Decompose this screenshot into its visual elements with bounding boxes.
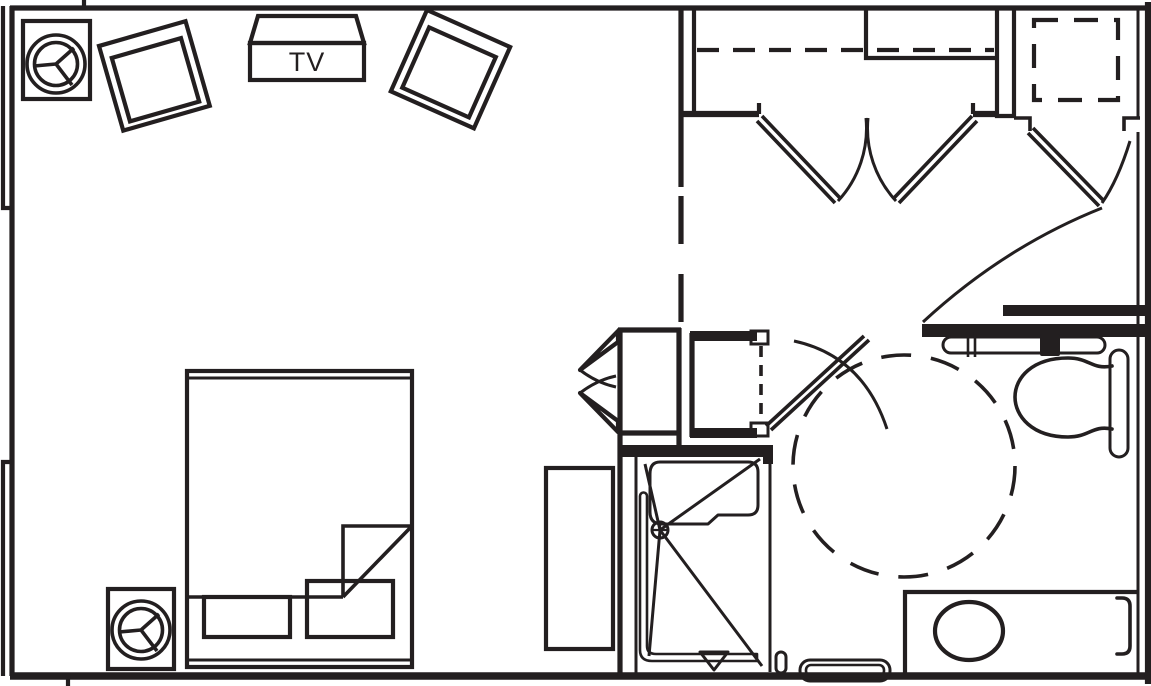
vestibule-bottom-wall (690, 428, 757, 438)
wheelchair-turning-circle (793, 355, 1015, 577)
entry-vestibule (690, 331, 757, 438)
closet-door-swing-left (838, 118, 866, 201)
entry-door-swing-small (1102, 141, 1130, 203)
lamp-table-bottom (108, 589, 174, 669)
bed-outline (187, 371, 412, 667)
bathroom-door (751, 331, 887, 436)
vanity-sink (935, 602, 1003, 660)
vestibule-top-wall (690, 331, 757, 341)
bathroom-door-swing (794, 341, 887, 429)
guest-room: TV (23, 10, 613, 669)
lounge-chair-left (99, 21, 210, 130)
vanity-towel-bar (1117, 598, 1130, 654)
bifold-doors (580, 331, 618, 432)
clear-floor-space-dashed-square (1034, 20, 1118, 100)
lamp-table-top (23, 21, 90, 99)
bathroom-north-wall-upper (1003, 305, 1148, 316)
entry-closet (681, 8, 1014, 203)
lounge-chair-right (391, 10, 510, 128)
closet-right-wall (997, 8, 1014, 116)
toilet-area (943, 332, 1128, 457)
blanket-fold (343, 526, 410, 597)
tv-label: TV (289, 47, 326, 77)
grab-bar-mount (1040, 334, 1060, 356)
bedroom-closet (580, 328, 681, 450)
dresser-bench (546, 468, 613, 649)
tv-cabinet-top (250, 16, 364, 43)
floor-plan-drawing: TV (0, 0, 1151, 686)
chair-seat (112, 38, 199, 121)
tv-cabinet: TV (250, 16, 364, 80)
bifold-door-lower (580, 393, 618, 432)
closet-door-swing-right (868, 118, 896, 201)
pillow-left (204, 597, 290, 637)
entry-door-leaf (1028, 128, 1104, 206)
bathroom-north-wall-lower (922, 324, 1148, 337)
vanity (905, 592, 1138, 674)
alcove-jamb-right (1124, 118, 1140, 131)
entry-door (923, 128, 1130, 322)
bathroom (640, 332, 1138, 681)
toilet-bowl (1015, 358, 1112, 437)
floor-plan-canvas: TV (0, 0, 1151, 686)
entry-alcove (923, 8, 1140, 322)
shower-spray-lines (645, 459, 762, 666)
alcove-jamb-left (1014, 118, 1030, 131)
bifold-door-upper (580, 331, 618, 370)
roll-in-shower (640, 457, 786, 673)
bathroom-door-leaf (766, 336, 869, 430)
closet-double-doors (757, 116, 977, 203)
vanity-counter (905, 592, 1138, 674)
bed (187, 371, 412, 667)
entry-door-swing-large (923, 208, 1102, 322)
shower-north-wall (618, 445, 773, 457)
closet-door-leaf-right (894, 116, 977, 203)
closet-door-leaf-left (757, 116, 840, 203)
shower-curb-post (776, 652, 786, 673)
